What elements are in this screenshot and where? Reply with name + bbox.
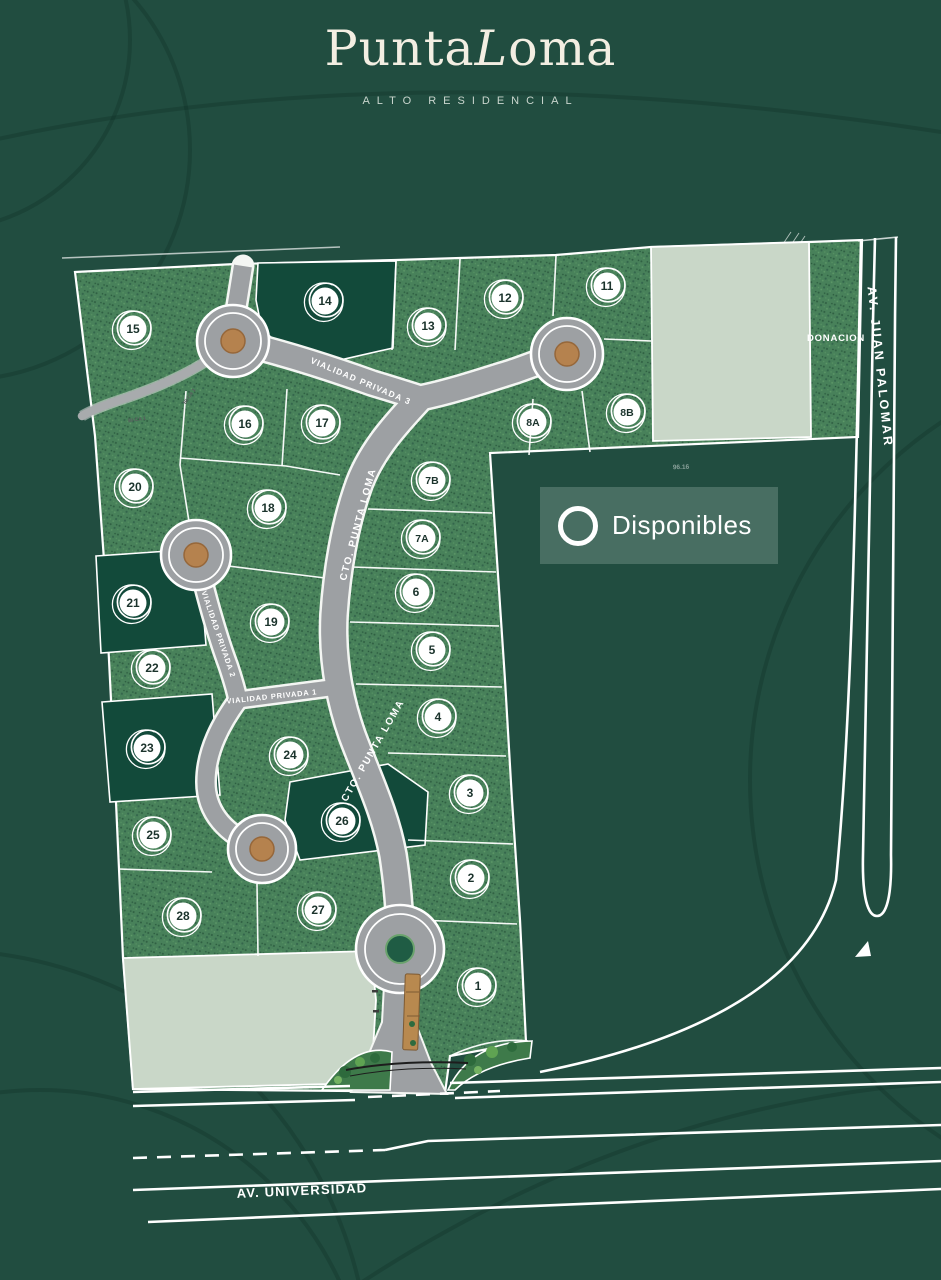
brand-punta: Punta <box>325 20 475 77</box>
label-av-universidad: AV. UNIVERSIDAD <box>236 1180 367 1201</box>
roundabout-2 <box>531 318 603 390</box>
svg-text:22: 22 <box>145 661 159 675</box>
legend-label: Disponibles <box>612 510 752 541</box>
svg-text:4: 4 <box>435 710 442 724</box>
label-av-juan-palomar: AV. JUAN PALOMAR <box>865 286 896 449</box>
svg-text:28: 28 <box>176 909 190 923</box>
label-donacion: DONACION <box>807 333 865 344</box>
donation-area <box>651 242 811 441</box>
svg-text:8B: 8B <box>620 407 634 419</box>
svg-text:7B: 7B <box>425 475 439 487</box>
svg-text:19: 19 <box>264 615 278 629</box>
page: PuntaLoma ALTO RESIDENCIAL Disponibles <box>0 0 941 1280</box>
svg-text:6: 6 <box>413 585 420 599</box>
roundabout-entrance <box>356 905 444 993</box>
svg-text:1: 1 <box>475 979 482 993</box>
amenity-area <box>123 951 376 1089</box>
label-measure: 96.16 <box>673 464 690 472</box>
legend-disponibles: Disponibles <box>540 487 778 564</box>
svg-text:11: 11 <box>601 279 614 293</box>
svg-text:21: 21 <box>126 596 140 610</box>
svg-text:7A: 7A <box>415 533 429 545</box>
brand-title: PuntaLoma <box>0 24 941 73</box>
gate-mark <box>372 990 378 993</box>
svg-text:17: 17 <box>315 416 329 430</box>
gate-mark <box>373 1010 379 1013</box>
svg-text:12: 12 <box>498 291 512 305</box>
roundabout-4 <box>228 815 296 883</box>
roundabout-3 <box>161 520 231 590</box>
brand-oma: oma <box>508 20 616 77</box>
svg-text:5: 5 <box>429 643 436 657</box>
svg-text:26: 26 <box>335 814 349 828</box>
yield-triangle-icon <box>855 941 871 957</box>
available-circle-icon <box>558 506 598 546</box>
svg-text:18: 18 <box>261 501 275 515</box>
svg-text:3: 3 <box>467 786 474 800</box>
svg-text:15: 15 <box>126 322 140 336</box>
svg-text:13: 13 <box>421 319 435 333</box>
svg-text:23: 23 <box>140 741 154 755</box>
svg-text:2: 2 <box>468 871 475 885</box>
brand-l: L <box>475 20 509 77</box>
svg-text:16: 16 <box>238 417 252 431</box>
svg-text:25: 25 <box>146 828 160 842</box>
svg-text:27: 27 <box>311 903 325 917</box>
svg-text:8A: 8A <box>526 417 540 429</box>
site-plan-map: VIALIDAD PRIVADA 3 CTO. PUNTA LOMA CTO. … <box>0 0 941 1280</box>
svg-text:14: 14 <box>318 294 332 308</box>
brand-subtitle: ALTO RESIDENCIAL <box>0 95 941 107</box>
svg-text:24: 24 <box>283 748 297 762</box>
header: PuntaLoma ALTO RESIDENCIAL <box>0 24 941 107</box>
roundabout-1 <box>197 305 269 377</box>
svg-text:20: 20 <box>128 480 142 494</box>
